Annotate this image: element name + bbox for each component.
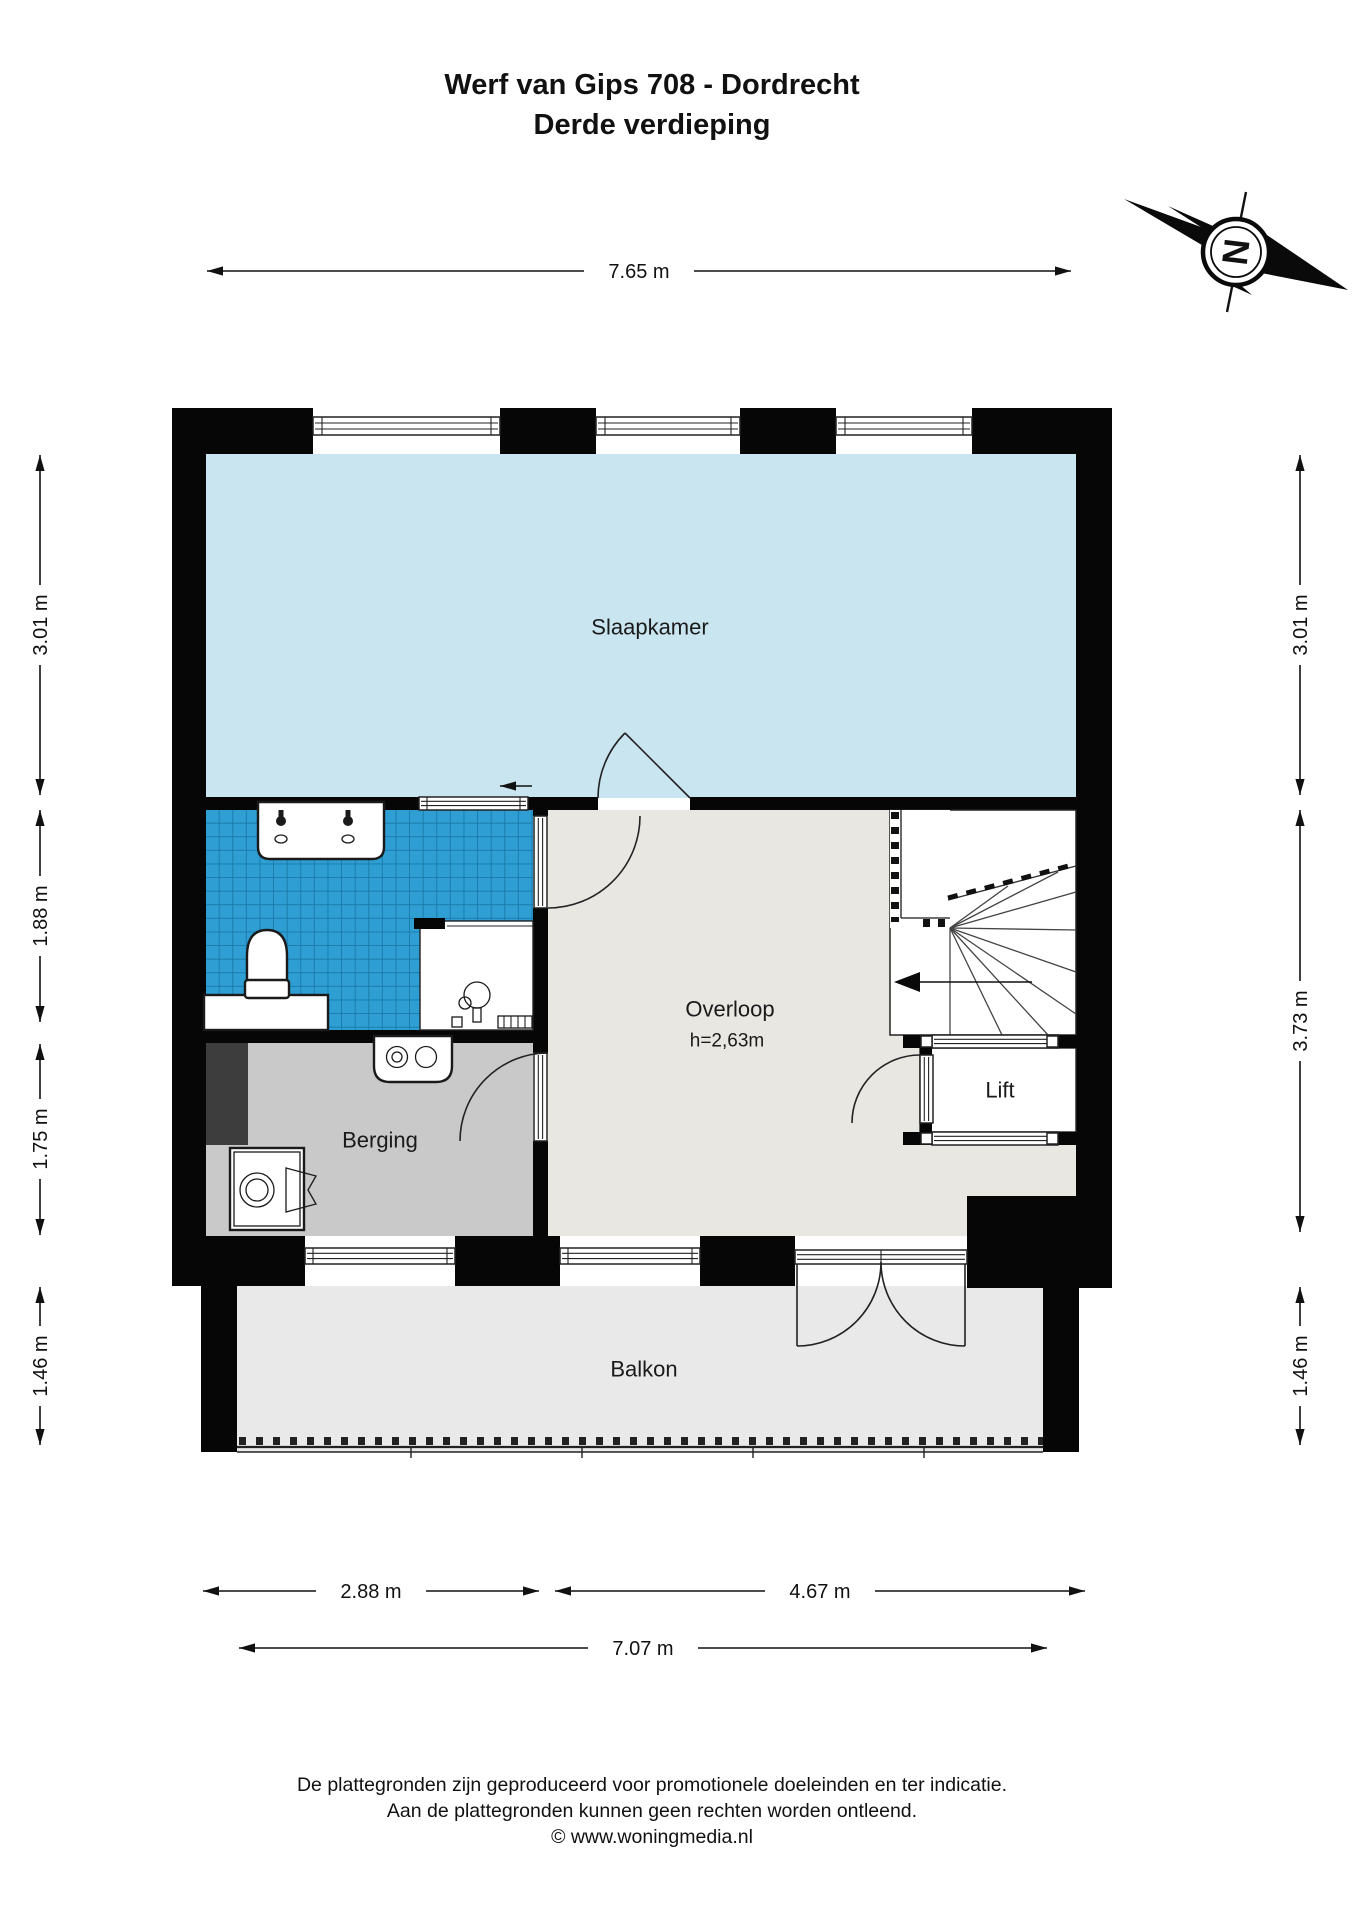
window-top-2 — [596, 417, 740, 435]
dimension-left-column: 3.01 m 1.88 m 1.75 m 1.46 m — [30, 455, 52, 1445]
dim-left-1: 3.01 m — [30, 594, 52, 655]
floorplan-canvas: Werf van Gips 708 - Dordrecht Derde verd… — [0, 0, 1358, 1920]
footer-disclaimer-1: De plattegronden zijn geproduceerd voor … — [297, 1774, 1007, 1796]
page-title: Werf van Gips 708 - Dordrecht — [444, 69, 860, 101]
dim-left-4: 1.46 m — [30, 1335, 52, 1396]
dimension-top: 7.65 m — [207, 261, 1071, 283]
dim-top-label: 7.65 m — [608, 261, 669, 283]
shower — [414, 918, 533, 1030]
boiler-unit — [374, 1036, 452, 1082]
dim-left-2: 1.88 m — [30, 885, 52, 946]
label-berging: Berging — [342, 1128, 418, 1153]
duct-shaft — [206, 1043, 248, 1145]
dim-right-1: 3.01 m — [1290, 594, 1312, 655]
label-overloop-height: h=2,63m — [690, 1031, 764, 1052]
footer-disclaimer-2: Aan de plattegronden kunnen geen rechten… — [387, 1800, 917, 1822]
label-slaapkamer: Slaapkamer — [591, 615, 708, 640]
label-overloop: Overloop — [685, 997, 774, 1022]
window-bottom-2 — [560, 1248, 700, 1264]
footer-copyright: © www.woningmedia.nl — [551, 1826, 753, 1848]
dim-bottom-total: 7.07 m — [612, 1638, 673, 1660]
lift-door-top — [921, 1035, 1058, 1048]
label-lift: Lift — [985, 1078, 1014, 1103]
dimension-bottom-row1: 2.88 m 4.67 m — [203, 1581, 1085, 1603]
double-washbasin — [258, 802, 384, 859]
staircase — [890, 810, 1076, 1035]
dim-bottom-1: 2.88 m — [340, 1581, 401, 1603]
compass-north-icon: N — [1124, 192, 1348, 312]
lift-door-bottom — [921, 1132, 1058, 1145]
floorplan-page: Werf van Gips 708 - Dordrecht Derde verd… — [0, 0, 1358, 1920]
dim-right-3: 1.46 m — [1290, 1335, 1312, 1396]
dimension-right-column: 3.01 m 3.73 m 1.46 m — [1290, 455, 1312, 1445]
dim-left-3: 1.75 m — [30, 1108, 52, 1169]
dim-bottom-2: 4.67 m — [789, 1581, 850, 1603]
window-bottom-1 — [305, 1248, 455, 1264]
dim-right-2: 3.73 m — [1290, 990, 1312, 1051]
window-top-1 — [313, 417, 500, 435]
page-subtitle: Derde verdieping — [534, 109, 771, 141]
compass-n-label: N — [1214, 237, 1258, 268]
window-top-3 — [836, 417, 972, 435]
washing-machine — [230, 1148, 316, 1230]
label-balkon: Balkon — [610, 1357, 677, 1382]
dimension-bottom-row2: 7.07 m — [239, 1638, 1047, 1660]
